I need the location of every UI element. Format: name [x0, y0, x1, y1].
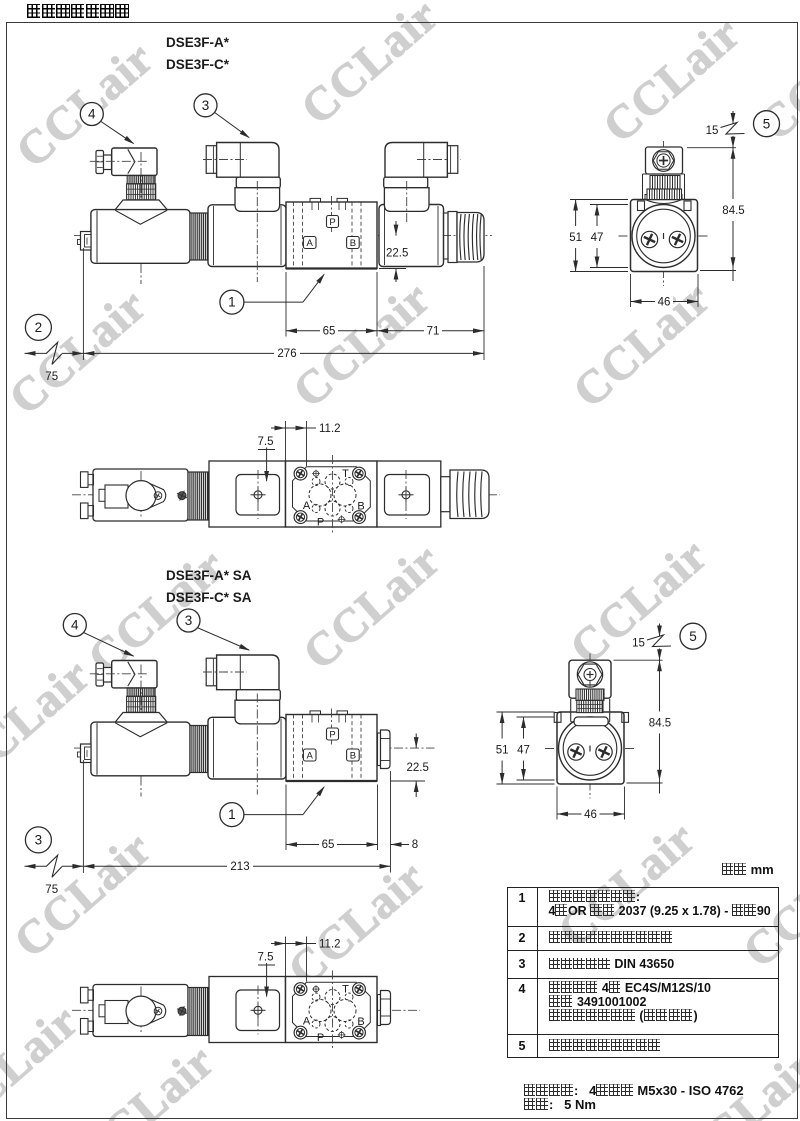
svg-text:51: 51: [569, 232, 582, 244]
svg-text:A: A: [303, 1016, 311, 1028]
svg-text:47: 47: [591, 232, 604, 244]
svg-text:T: T: [342, 984, 349, 996]
svg-text:47: 47: [517, 745, 530, 757]
svg-text:276: 276: [277, 348, 296, 360]
svg-text:65: 65: [322, 839, 335, 851]
svg-text:22.5: 22.5: [407, 762, 429, 774]
svg-text:3: 3: [35, 833, 43, 848]
svg-text:B: B: [350, 750, 356, 761]
svg-text:DSE3F-A* SA: DSE3F-A* SA: [166, 568, 252, 583]
svg-text:P: P: [329, 729, 335, 740]
svg-text:46: 46: [584, 809, 597, 821]
svg-text:5: 5: [689, 629, 697, 644]
svg-text:1: 1: [228, 295, 236, 310]
svg-text:3: 3: [202, 98, 210, 113]
svg-text:DSE3F-C*: DSE3F-C*: [166, 57, 230, 72]
svg-text:71: 71: [427, 326, 440, 338]
svg-text:15: 15: [632, 638, 645, 650]
svg-text:65: 65: [323, 326, 336, 338]
svg-text:15: 15: [706, 125, 719, 137]
svg-text:P: P: [317, 1032, 324, 1044]
svg-text:75: 75: [45, 371, 58, 383]
svg-text:B: B: [350, 238, 356, 249]
svg-text:213: 213: [230, 861, 249, 873]
svg-text:7.5: 7.5: [258, 952, 274, 964]
svg-text:2: 2: [35, 320, 43, 335]
svg-text:7.5: 7.5: [258, 436, 274, 448]
svg-text:1: 1: [228, 807, 236, 822]
svg-text:84.5: 84.5: [722, 205, 744, 217]
svg-text:T: T: [342, 468, 349, 480]
svg-text:22.5: 22.5: [386, 248, 408, 260]
svg-text:5: 5: [763, 116, 771, 131]
svg-text:11.2: 11.2: [319, 423, 341, 435]
svg-text:P: P: [317, 517, 324, 529]
svg-text:84.5: 84.5: [649, 718, 671, 730]
svg-text:8: 8: [412, 839, 418, 851]
svg-text:P: P: [329, 217, 335, 228]
svg-text:11.2: 11.2: [319, 939, 341, 951]
svg-text:3: 3: [185, 613, 193, 628]
svg-text:51: 51: [496, 745, 509, 757]
svg-text:B: B: [357, 1016, 364, 1028]
svg-text:75: 75: [45, 884, 58, 896]
svg-text:DSE3F-C* SA: DSE3F-C* SA: [166, 590, 252, 605]
svg-text:B: B: [357, 501, 364, 513]
svg-text:DSE3F-A*: DSE3F-A*: [166, 35, 230, 50]
svg-text:A: A: [303, 500, 311, 512]
svg-text:A: A: [307, 750, 314, 761]
svg-text:4: 4: [71, 618, 79, 633]
svg-text:A: A: [307, 238, 314, 249]
svg-text:46: 46: [658, 296, 671, 308]
svg-text:4: 4: [88, 107, 96, 122]
